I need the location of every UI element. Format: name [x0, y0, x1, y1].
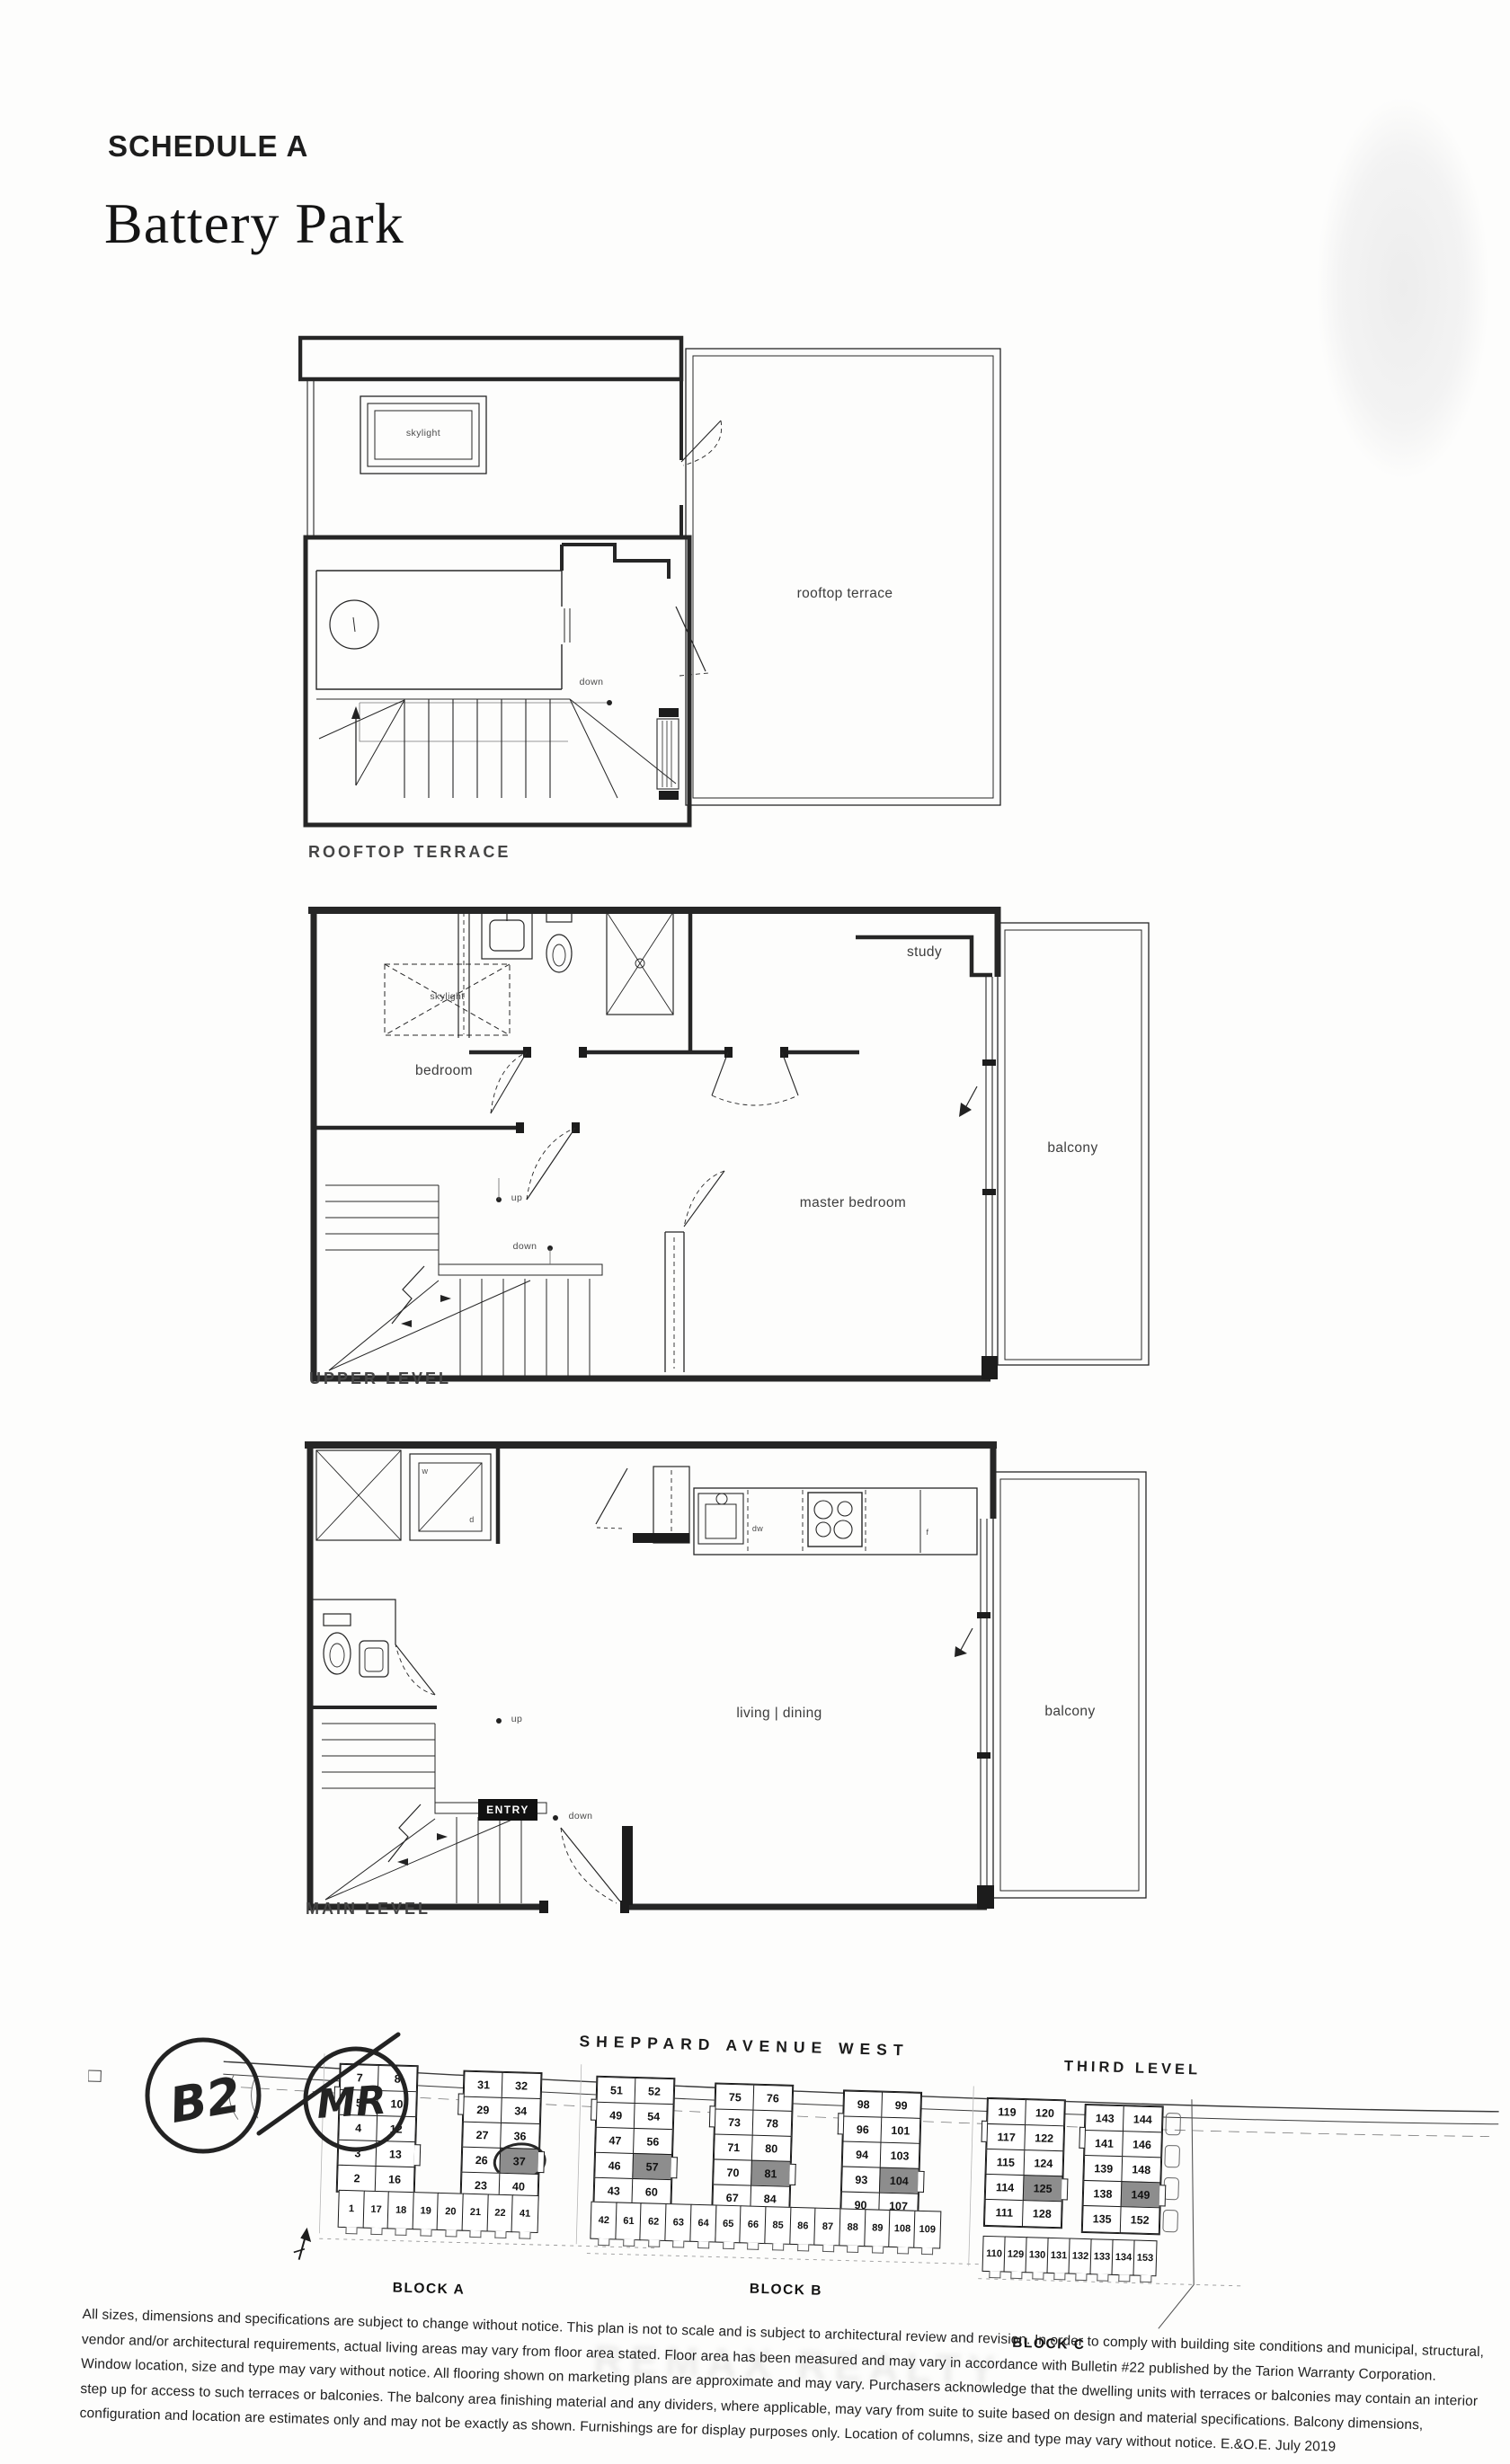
unit-cell-75: 75 [715, 2084, 755, 2112]
unit-cell-139: 139 [1084, 2155, 1124, 2183]
unit-cell-71: 71 [714, 2134, 753, 2162]
block-label: BLOCK B [750, 2282, 823, 2300]
unit-cell-18: 18 [387, 2191, 415, 2229]
unit-cell-129: 129 [1004, 2237, 1028, 2273]
unit-cell-141: 141 [1084, 2130, 1124, 2158]
unit-cell-63: 63 [664, 2203, 692, 2242]
site-building: 51524954475646574360 [592, 2076, 675, 2207]
unit-cell-32: 32 [502, 2072, 541, 2100]
floorplan-main: w d dw f living | dining balcony up down… [302, 1436, 1156, 1939]
upper-stairs [325, 1185, 602, 1376]
unit-cell-31: 31 [464, 2071, 503, 2099]
unit-cell-21: 21 [462, 2194, 490, 2232]
appliance-label-fridge: f [922, 1528, 933, 1537]
unit-cell-29: 29 [463, 2096, 502, 2124]
unit-cell-124: 124 [1024, 2149, 1063, 2177]
room-label-skylight: skylight [360, 428, 486, 439]
unit-cell-46: 46 [595, 2152, 635, 2180]
unit-cell-120: 120 [1025, 2099, 1064, 2127]
unit-cell-133: 133 [1089, 2238, 1114, 2275]
unit-cell-108: 108 [889, 2210, 917, 2248]
unit-cell-80: 80 [751, 2135, 791, 2163]
appliance-label-dryer: d [466, 1515, 478, 1524]
unit-cell-101: 101 [881, 2117, 920, 2145]
site-building: 75767378718070816784 [711, 2082, 794, 2213]
room-label-bedroom: bedroom [399, 1063, 489, 1079]
unit-cell-128: 128 [1022, 2200, 1061, 2228]
unit-cell-87: 87 [814, 2208, 842, 2247]
scan-artifact-blob [1292, 43, 1510, 533]
unit-cell-70: 70 [713, 2159, 752, 2187]
unit-cell-144: 144 [1123, 2105, 1162, 2133]
site-building: 989996101941039310490107 [839, 2089, 922, 2220]
unit-cell-119: 119 [987, 2098, 1026, 2126]
site-building: 143144141146139148138149135152 [1081, 2104, 1164, 2235]
room-label-master-bedroom: master bedroom [777, 1195, 929, 1211]
unit-cell-85: 85 [764, 2206, 792, 2245]
block-label: BLOCK A [392, 2281, 465, 2299]
room-label-study: study [877, 944, 972, 961]
stair-label-up-main: up [505, 1714, 528, 1724]
unit-cell-78: 78 [752, 2110, 792, 2138]
unit-cell-1: 1 [338, 2190, 366, 2229]
handwritten-annotations: B2 MR [124, 2024, 439, 2181]
unit-cell-73: 73 [715, 2109, 754, 2137]
plan-caption-main: MAIN LEVEL [306, 1900, 431, 1919]
page-title-project: Battery Park [104, 191, 404, 257]
unit-cell-153: 153 [1132, 2240, 1157, 2277]
unit-cell-143: 143 [1085, 2105, 1124, 2132]
unit-cell-86: 86 [789, 2207, 817, 2246]
unit-cell-66: 66 [739, 2205, 767, 2244]
floorplan-upper: skylight bedroom study master bedroom ba… [306, 901, 1159, 1405]
unit-cell-65: 65 [715, 2205, 742, 2244]
unit-cell-42: 42 [590, 2202, 617, 2240]
unit-cell-19: 19 [412, 2192, 440, 2230]
unit-cell-56: 56 [633, 2128, 672, 2156]
unit-cell-149: 149 [1121, 2181, 1160, 2209]
appliance-label-washer: w [419, 1467, 431, 1476]
unit-cell-99: 99 [882, 2092, 921, 2120]
floorplan-rooftop: skylight rooftop terrace down ROOFTOP TE… [298, 334, 1008, 882]
unit-cell-104: 104 [879, 2167, 919, 2195]
unit-cell-152: 152 [1120, 2206, 1159, 2234]
unit-cell-37: 37 [500, 2148, 539, 2176]
unit-cell-98: 98 [844, 2091, 884, 2119]
unit-cell-115: 115 [986, 2149, 1026, 2176]
unit-cell-93: 93 [841, 2167, 881, 2194]
stair-label-up-upper: up [505, 1192, 528, 1203]
bathroom-fixtures [482, 910, 673, 1015]
unit-cell-96: 96 [843, 2116, 883, 2144]
handwritten-mr: MR [315, 2078, 388, 2128]
unit-cell-134: 134 [1111, 2239, 1135, 2276]
unit-cell-61: 61 [615, 2202, 643, 2240]
unit-cell-103: 103 [880, 2142, 919, 2170]
unit-cell-146: 146 [1122, 2131, 1161, 2158]
entry-label: ENTRY [478, 1799, 537, 1821]
unit-cell-131: 131 [1046, 2238, 1070, 2274]
site-building: 119120117122115124114125111128 [983, 2097, 1066, 2229]
room-label-balcony-main: balcony [1014, 1704, 1126, 1720]
unit-cell-57: 57 [633, 2153, 672, 2181]
unit-cell-20: 20 [437, 2193, 465, 2231]
handwritten-b2: B2 [165, 2066, 244, 2134]
room-label-balcony-upper: balcony [1008, 1140, 1138, 1157]
unit-cell-76: 76 [753, 2085, 793, 2113]
unit-cell-49: 49 [596, 2102, 635, 2130]
unit-cell-51: 51 [597, 2077, 636, 2105]
plan-caption-rooftop: ROOFTOP TERRACE [308, 843, 511, 862]
unit-cell-148: 148 [1122, 2156, 1161, 2184]
unit-cell-47: 47 [595, 2127, 635, 2155]
appliance-label-dishwasher: dw [748, 1524, 768, 1533]
unit-cell-132: 132 [1068, 2238, 1092, 2275]
unit-cell-22: 22 [486, 2194, 514, 2232]
unit-cell-130: 130 [1025, 2237, 1049, 2273]
unit-cell-109: 109 [913, 2211, 941, 2249]
unit-cell-125: 125 [1023, 2175, 1062, 2203]
unit-cell-135: 135 [1082, 2205, 1122, 2233]
unit-cell-64: 64 [689, 2204, 717, 2243]
stair-label-down: down [573, 677, 609, 687]
unit-cell-88: 88 [839, 2208, 866, 2247]
room-label-living-dining: living | dining [721, 1706, 838, 1722]
rooftop-plan-drawing [298, 334, 1008, 882]
unit-cell-27: 27 [462, 2122, 502, 2149]
unit-cell-94: 94 [842, 2141, 882, 2169]
stair-label-down-upper: down [507, 1241, 543, 1252]
unit-cell-41: 41 [511, 2194, 539, 2233]
unit-cell-17: 17 [362, 2191, 390, 2229]
plan-caption-upper: UPPER LEVEL [309, 1369, 451, 1388]
unit-cell-138: 138 [1083, 2180, 1123, 2208]
kitchen-fixtures [694, 1488, 977, 1555]
powder-fixtures [307, 1600, 435, 1695]
unit-cell-122: 122 [1025, 2124, 1064, 2152]
unit-cell-34: 34 [501, 2097, 540, 2125]
unit-cell-62: 62 [640, 2203, 668, 2241]
site-building: 31322934273626372340 [460, 2070, 543, 2202]
unit-cell-54: 54 [634, 2103, 673, 2131]
unit-cell-110: 110 [982, 2236, 1007, 2273]
unit-cell-89: 89 [864, 2209, 892, 2247]
main-plan-drawing [302, 1436, 1156, 1939]
unit-cell-81: 81 [751, 2160, 790, 2188]
unit-cell-111: 111 [984, 2199, 1024, 2227]
room-label-skylight-upper: skylight [385, 991, 510, 1002]
laundry-fixtures [316, 1450, 491, 1540]
room-label-rooftop-terrace: rooftop terrace [755, 586, 935, 602]
unit-cell-52: 52 [635, 2078, 674, 2105]
page-title-schedule: SCHEDULE A [108, 129, 308, 164]
unit-cell-114: 114 [985, 2174, 1025, 2202]
unit-cell-117: 117 [987, 2123, 1026, 2151]
stair-label-down-main: down [563, 1811, 599, 1821]
